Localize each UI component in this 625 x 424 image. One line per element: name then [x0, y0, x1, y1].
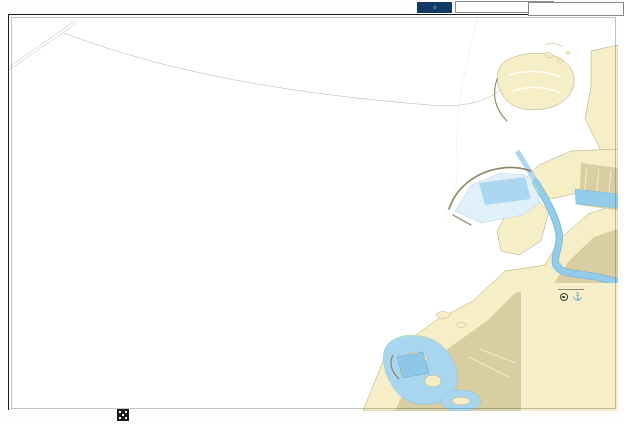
- corrections-note-box: [528, 2, 624, 16]
- admiralty-logo: ⚓: [417, 2, 452, 13]
- anchor-icon: ⚓: [433, 5, 438, 9]
- chart-map: [9, 15, 618, 411]
- admiralty-crest-icon: ⚓: [573, 293, 583, 301]
- hydrographic-seal-icon: [560, 293, 568, 301]
- chart-frame: [8, 14, 617, 410]
- title-block: ⚓: [524, 289, 618, 306]
- title-block-topline: [558, 289, 584, 290]
- title-block-emblems: ⚓: [524, 292, 618, 303]
- qr-code: [117, 409, 129, 421]
- nautical-chart-page: ⚓: [0, 0, 625, 424]
